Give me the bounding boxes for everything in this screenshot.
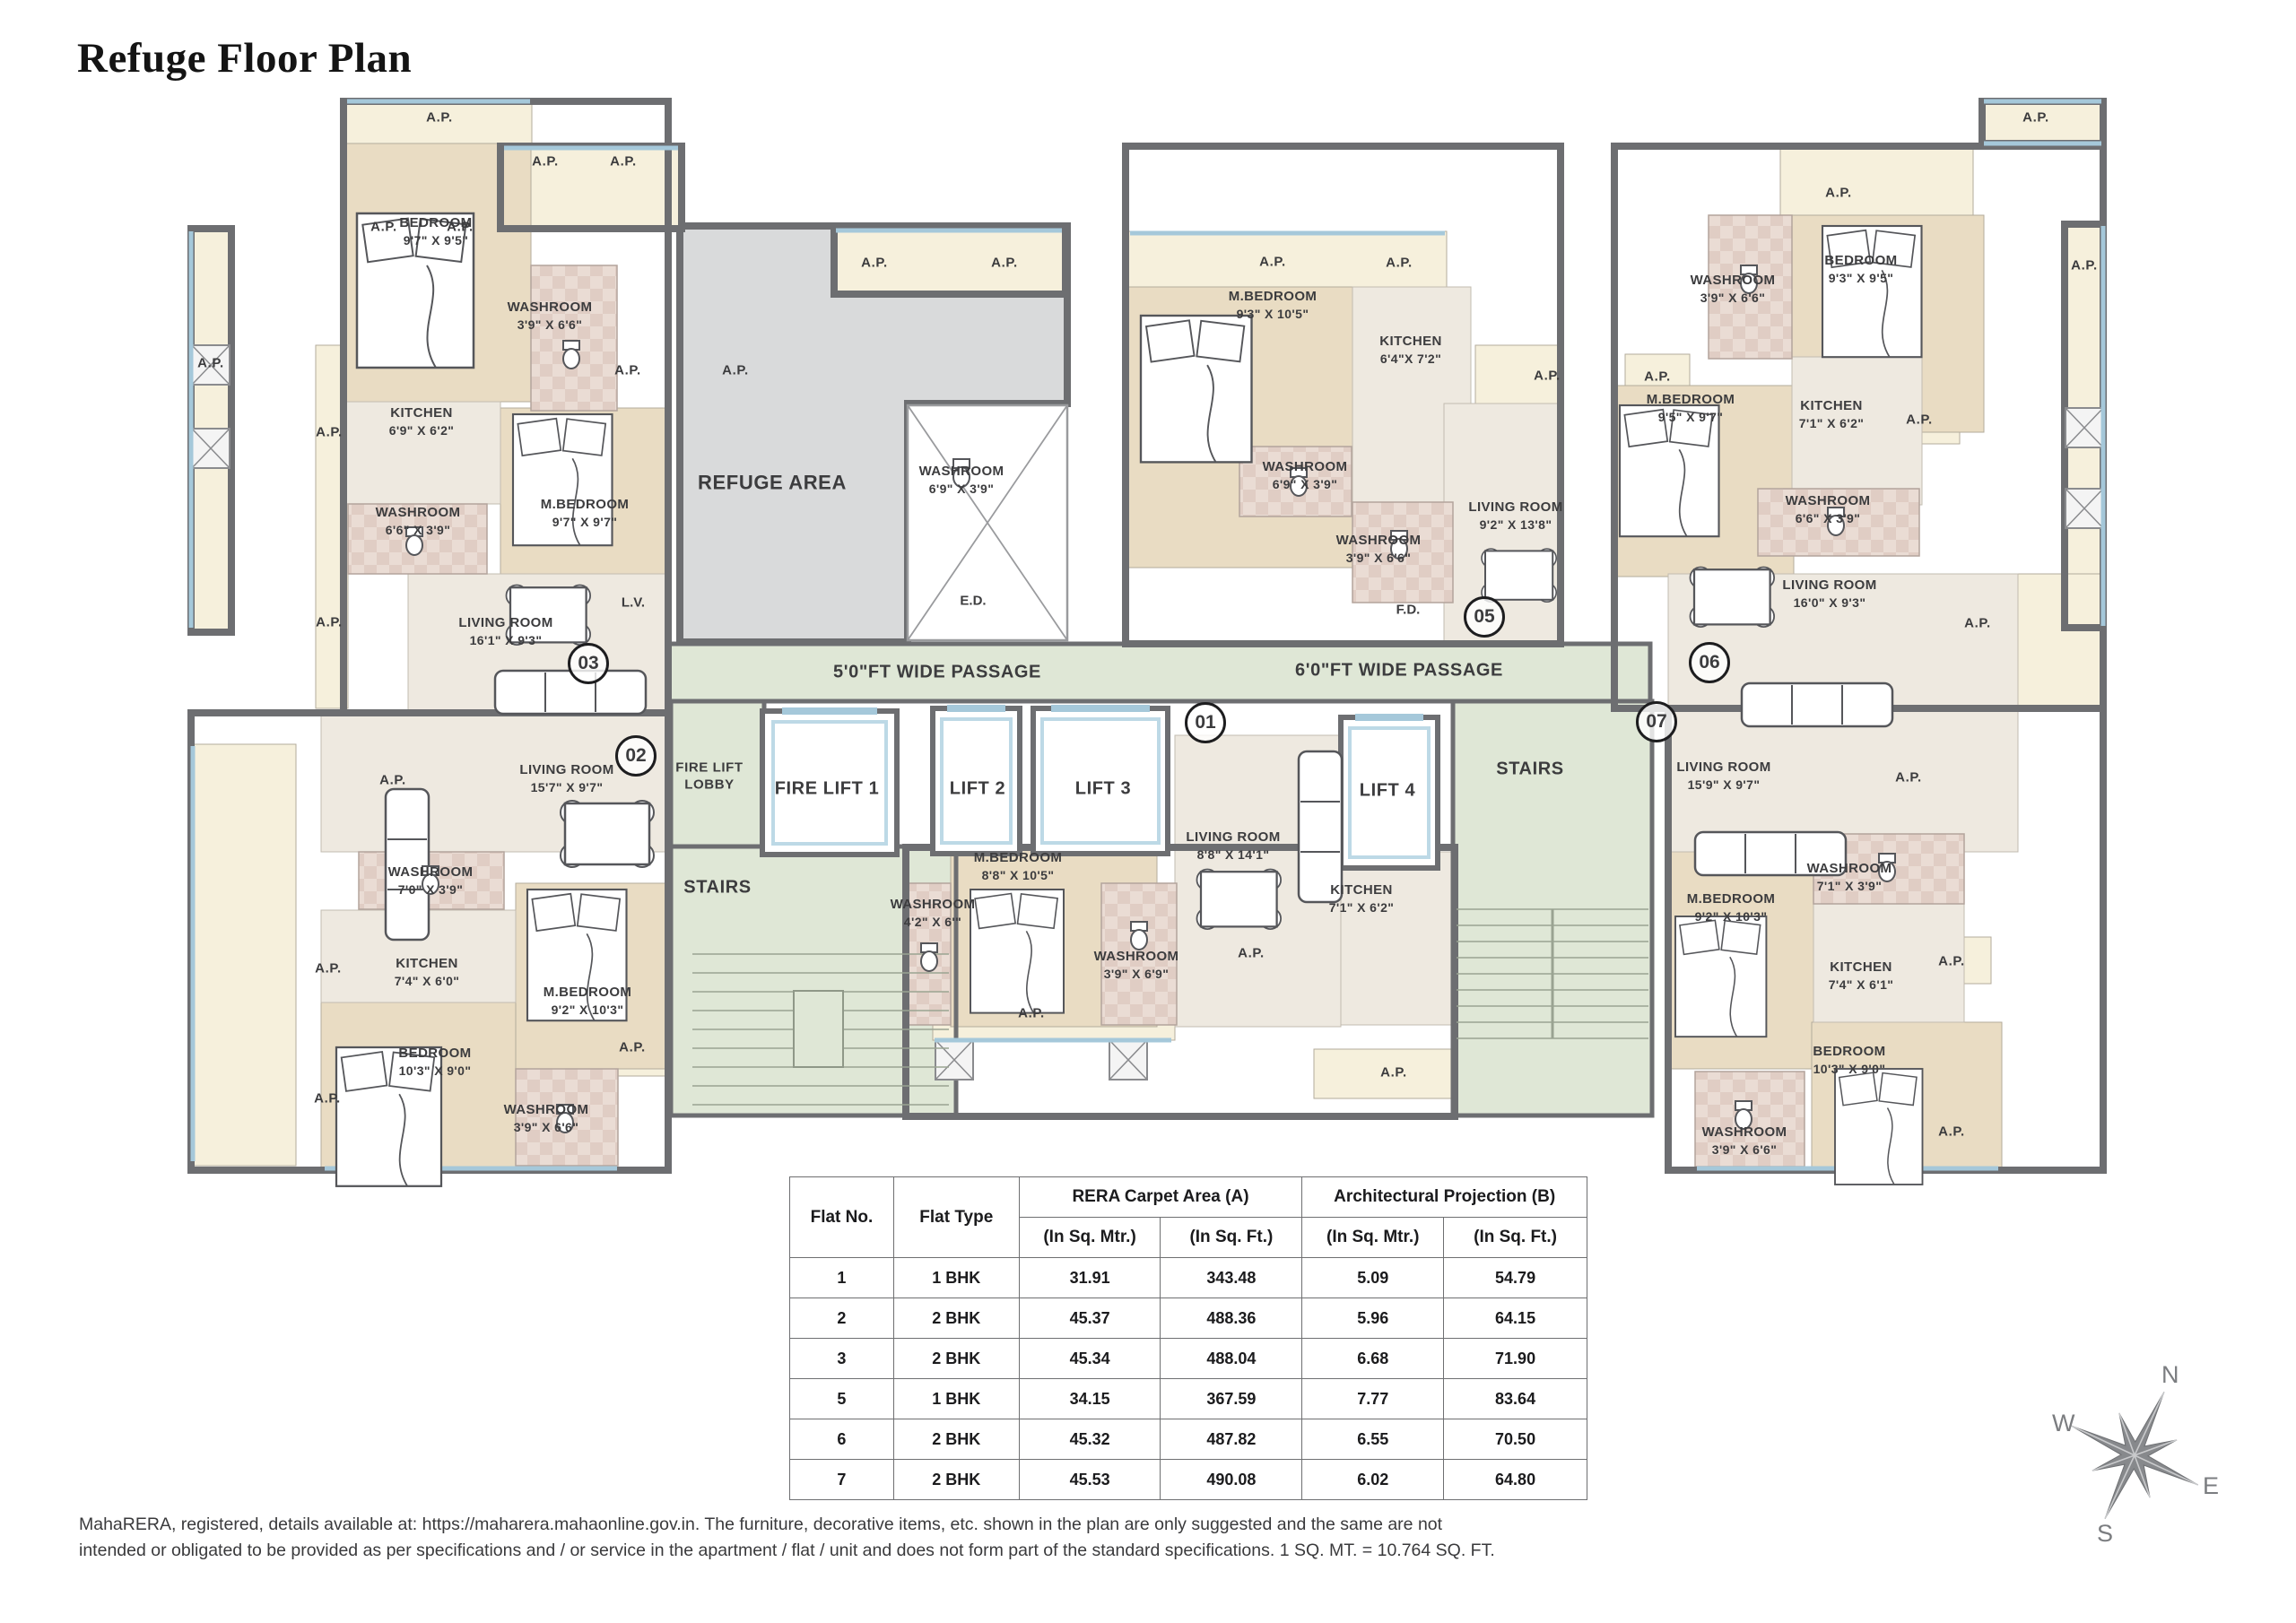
room-dimensions: 15'9" X 9'7" (1676, 777, 1770, 793)
ap-label: A.P. (1895, 770, 1922, 785)
room-label: LIVING ROOM15'7" X 9'7" (519, 761, 613, 795)
ap-label: A.P. (722, 363, 749, 378)
room-label: BEDROOM9'3" X 9'5" (1824, 252, 1897, 286)
room-name: WASHROOM (504, 1102, 589, 1117)
table-cell: 488.04 (1161, 1339, 1302, 1379)
room-name: WASHROOM (1691, 273, 1776, 288)
room-name: LIVING ROOM (1468, 499, 1562, 515)
th-flat-type: Flat Type (893, 1177, 1019, 1258)
compass-e-label: E (2203, 1472, 2220, 1500)
room-name: M.BEDROOM (974, 850, 1063, 865)
room-dimensions: 7'1" X 6'2" (1799, 415, 1865, 431)
ap-label: A.P. (619, 1040, 646, 1055)
disclaimer: MahaRERA, registered, details available … (79, 1512, 1495, 1565)
room-label: LIVING ROOM15'9" X 9'7" (1676, 759, 1770, 793)
compass-w-label: W (2052, 1410, 2075, 1437)
room-dimensions: 8'8" X 14'1" (1186, 846, 1280, 863)
area-label: FIRE LIFT LOBBY (675, 759, 743, 794)
room-label: M.BEDROOM9'5" X 9'7" (1647, 391, 1735, 425)
area-label: LIFT 4 (1360, 780, 1416, 803)
ap-label: A.P. (991, 256, 1018, 271)
table-cell: 2 BHK (893, 1298, 1019, 1339)
table-cell: 45.37 (1019, 1298, 1161, 1339)
table-cell: 5 (790, 1379, 894, 1419)
area-label: FIRE LIFT 1 (775, 778, 880, 801)
room-name: WASHROOM (1336, 533, 1422, 548)
room-dimensions: 6'9" X 3'9" (1263, 476, 1348, 492)
room-label: LIVING ROOM16'0" X 9'3" (1782, 577, 1876, 611)
table-cell: 54.79 (1444, 1258, 1587, 1298)
ap-label: A.P. (1259, 255, 1286, 270)
area-label: STAIRS (1496, 759, 1563, 781)
th-sub-unit: (In Sq. Ft.) (1161, 1218, 1302, 1258)
room-dimensions: 8'8" X 10'5" (974, 867, 1063, 883)
unit-number-badge: 01 (1185, 702, 1226, 743)
table-cell: 45.34 (1019, 1339, 1161, 1379)
th-sub-unit: (In Sq. Mtr.) (1019, 1218, 1161, 1258)
area-label: STAIRS (683, 877, 751, 899)
ap-label: A.P. (426, 110, 453, 126)
room-name: WASHROOM (1094, 949, 1179, 964)
room-name: WASHROOM (1786, 493, 1871, 508)
table-cell: 367.59 (1161, 1379, 1302, 1419)
room-name: M.BEDROOM (544, 985, 632, 1000)
table-cell: 2 BHK (893, 1419, 1019, 1460)
room-dimensions: 6'6" X 3'9" (1786, 510, 1871, 526)
room-name: WASHROOM (1263, 459, 1348, 474)
room-dimensions: 10'3" X 9'0" (1813, 1061, 1885, 1077)
room-label: WASHROOM3'9" X 6'6" (504, 1101, 589, 1135)
unit-number-badge: 05 (1464, 596, 1505, 638)
room-name: WASHROOM (891, 897, 976, 912)
room-name: WASHROOM (1807, 861, 1892, 876)
table-cell: 83.64 (1444, 1379, 1587, 1419)
room-label: WASHROOM4'2" X 6'" (891, 896, 976, 930)
table-cell: 2 BHK (893, 1339, 1019, 1379)
room-name: M.BEDROOM (1647, 392, 1735, 407)
ap-label: A.P. (315, 961, 342, 976)
room-dimensions: 9'7" X 9'7" (541, 514, 630, 530)
room-label: WASHROOM3'9" X 6'6" (1702, 1124, 1787, 1158)
table-cell: 3 (790, 1339, 894, 1379)
room-name: WASHROOM (1702, 1124, 1787, 1140)
room-label: WASHROOM3'9" X 6'6" (1691, 272, 1776, 306)
ap-label: A.P. (447, 220, 474, 235)
room-dimensions: 15'7" X 9'7" (519, 779, 613, 795)
room-label: WASHROOM3'9" X 6'9" (1094, 948, 1179, 982)
ap-label: A.P. (1964, 616, 1991, 631)
room-dimensions: 7'0" X 3'9" (388, 881, 474, 898)
table-cell: 490.08 (1161, 1460, 1302, 1500)
ap-label: A.P. (314, 1091, 341, 1107)
table-row: 32 BHK45.34488.046.6871.90 (790, 1339, 1587, 1379)
unit-number-badge: 07 (1636, 701, 1677, 742)
table-cell: 64.80 (1444, 1460, 1587, 1500)
ap-label: A.P. (1906, 412, 1933, 428)
room-name: KITCHEN (396, 956, 457, 971)
table-row: 11 BHK31.91343.485.0954.79 (790, 1258, 1587, 1298)
room-label: WASHROOM7'0" X 3'9" (388, 864, 474, 898)
ap-label: A.P. (861, 256, 888, 271)
room-name: BEDROOM (398, 1046, 471, 1061)
table-row: 72 BHK45.53490.086.0264.80 (790, 1460, 1587, 1500)
th-flat-no: Flat No. (790, 1177, 894, 1258)
room-label: KITCHEN7'1" X 6'2" (1799, 397, 1865, 431)
page: Refuge Floor Plan (0, 0, 2296, 1623)
misc-label: L.V. (622, 595, 645, 611)
ap-label: A.P. (610, 154, 637, 169)
room-name: KITCHEN (1330, 882, 1392, 898)
table-cell: 45.32 (1019, 1419, 1161, 1460)
area-label: 5'0"FT WIDE PASSAGE (833, 662, 1041, 684)
room-name: WASHROOM (376, 505, 461, 520)
compass-star-icon (2027, 1336, 2260, 1587)
table-cell: 5.96 (1302, 1298, 1444, 1339)
table-cell: 343.48 (1161, 1258, 1302, 1298)
room-name: LIVING ROOM (458, 615, 552, 630)
unit-number-badge: 02 (615, 735, 657, 777)
table-cell: 7.77 (1302, 1379, 1444, 1419)
table-cell: 71.90 (1444, 1339, 1587, 1379)
table-cell: 6 (790, 1419, 894, 1460)
th-sub-unit: (In Sq. Ft.) (1444, 1218, 1587, 1258)
ap-label: A.P. (1938, 1124, 1965, 1140)
room-name: KITCHEN (390, 405, 452, 421)
room-label: LIVING ROOM8'8" X 14'1" (1186, 829, 1280, 863)
ap-label: A.P. (1644, 369, 1671, 385)
room-dimensions: 6'9" X 6'2" (389, 422, 455, 438)
room-dimensions: 7'1" X 6'2" (1329, 899, 1395, 916)
room-name: BEDROOM (1813, 1044, 1885, 1059)
misc-label: E.D. (960, 594, 986, 609)
ap-label: A.P. (1534, 369, 1561, 384)
table-cell: 1 (790, 1258, 894, 1298)
ap-label: A.P. (316, 615, 343, 630)
table-row: 51 BHK34.15367.597.7783.64 (790, 1379, 1587, 1419)
table-cell: 6.55 (1302, 1419, 1444, 1460)
room-label: KITCHEN7'4" X 6'1" (1829, 959, 1894, 993)
room-name: KITCHEN (1830, 959, 1892, 975)
table-cell: 34.15 (1019, 1379, 1161, 1419)
room-dimensions: 9'3" X 9'5" (1824, 270, 1897, 286)
area-label: LIFT 2 (950, 778, 1006, 801)
area-label: 6'0"FT WIDE PASSAGE (1295, 660, 1503, 682)
compass-rose: N E S W (2027, 1336, 2260, 1587)
room-label: KITCHEN7'4" X 6'0" (395, 955, 460, 989)
table-cell: 64.15 (1444, 1298, 1587, 1339)
room-dimensions: 9'5" X 9'7" (1647, 409, 1735, 425)
room-label: WASHROOM7'1" X 3'9" (1807, 860, 1892, 894)
table-row: 22 BHK45.37488.365.9664.15 (790, 1298, 1587, 1339)
table-cell: 487.82 (1161, 1419, 1302, 1460)
ap-label: A.P. (1018, 1006, 1045, 1021)
compass-s-label: S (2097, 1520, 2114, 1548)
disclaimer-line-1: MahaRERA, registered, details available … (79, 1512, 1495, 1538)
room-dimensions: 7'4" X 6'0" (395, 973, 460, 989)
flat-area-table-grid: Flat No.Flat TypeRERA Carpet Area (A)Arc… (789, 1176, 1587, 1500)
ap-label: A.P. (379, 773, 406, 788)
table-cell: 1 BHK (893, 1379, 1019, 1419)
room-dimensions: 4'2" X 6'" (891, 914, 976, 930)
ap-label: A.P. (1938, 954, 1965, 969)
disclaimer-line-2: intended or obligated to be provided as … (79, 1538, 1495, 1564)
room-label: KITCHEN7'1" X 6'2" (1329, 881, 1395, 916)
room-label: M.BEDROOM8'8" X 10'5" (974, 849, 1063, 883)
room-dimensions: 6'6" X 3'9" (376, 522, 461, 538)
th-architectural-projection: Architectural Projection (B) (1302, 1177, 1587, 1218)
room-label: WASHROOM6'6" X 3'9" (1786, 492, 1871, 526)
room-name: M.BEDROOM (1229, 289, 1318, 304)
flat-area-table: Flat No.Flat TypeRERA Carpet Area (A)Arc… (789, 1176, 1587, 1500)
room-name: LIVING ROOM (1186, 829, 1280, 845)
th-sub-unit: (In Sq. Mtr.) (1302, 1218, 1444, 1258)
room-label: WASHROOM6'9" X 3'9" (919, 463, 1004, 497)
room-name: LIVING ROOM (519, 762, 613, 777)
table-cell: 2 (790, 1298, 894, 1339)
room-name: LIVING ROOM (1782, 577, 1876, 593)
room-label: WASHROOM6'9" X 3'9" (1263, 458, 1348, 492)
room-dimensions: 7'4" X 6'1" (1829, 976, 1894, 993)
ap-label: A.P. (1380, 1065, 1407, 1081)
room-dimensions: 9'2" X 10'3" (1687, 908, 1776, 924)
ap-label: A.P. (1238, 946, 1265, 961)
room-dimensions: 9'3" X 10'5" (1229, 306, 1318, 322)
table-cell: 7 (790, 1460, 894, 1500)
room-label: WASHROOM6'6" X 3'9" (376, 504, 461, 538)
table-cell: 6.02 (1302, 1460, 1444, 1500)
misc-label: F.D. (1396, 603, 1421, 618)
ap-label: A.P. (532, 154, 559, 169)
room-name: BEDROOM (1824, 253, 1897, 268)
room-dimensions: 3'9" X 6'6" (508, 317, 593, 333)
room-name: KITCHEN (1800, 398, 1862, 413)
unit-number-badge: 03 (568, 643, 609, 684)
ap-label: A.P. (370, 220, 397, 235)
ap-label: A.P. (1386, 256, 1413, 271)
room-dimensions: 16'0" X 9'3" (1782, 595, 1876, 611)
room-dimensions: 16'1" X 9'3" (458, 632, 552, 648)
table-cell: 488.36 (1161, 1298, 1302, 1339)
room-label: WASHROOM3'9" X 6'6" (1336, 532, 1422, 566)
room-label: LIVING ROOM9'2" X 13'8" (1468, 499, 1562, 533)
unit-number-badge: 06 (1689, 642, 1730, 683)
room-name: WASHROOM (388, 864, 474, 880)
room-label: M.BEDROOM9'2" X 10'3" (544, 984, 632, 1018)
room-dimensions: 9'2" X 10'3" (544, 1002, 632, 1018)
room-label: M.BEDROOM9'2" X 10'3" (1687, 890, 1776, 924)
ap-label: A.P. (2071, 258, 2098, 273)
table-cell: 70.50 (1444, 1419, 1587, 1460)
room-name: WASHROOM (508, 299, 593, 315)
table-cell: 2 BHK (893, 1460, 1019, 1500)
ap-label: A.P. (1825, 186, 1852, 201)
room-dimensions: 6'4"X 7'2" (1379, 351, 1441, 367)
room-label: BEDROOM10'3" X 9'0" (398, 1045, 471, 1079)
table-cell: 6.68 (1302, 1339, 1444, 1379)
room-dimensions: 3'9" X 6'9" (1094, 966, 1179, 982)
room-label: M.BEDROOM9'3" X 10'5" (1229, 288, 1318, 322)
room-name: LIVING ROOM (1676, 759, 1770, 775)
room-dimensions: 6'9" X 3'9" (919, 481, 1004, 497)
room-name: KITCHEN (1379, 334, 1441, 349)
ap-label: A.P. (197, 356, 224, 371)
area-label: LIFT 3 (1075, 778, 1132, 801)
room-label: M.BEDROOM9'7" X 9'7" (541, 496, 630, 530)
table-cell: 5.09 (1302, 1258, 1444, 1298)
room-dimensions: 9'2" X 13'8" (1468, 516, 1562, 533)
room-dimensions: 7'1" X 3'9" (1807, 878, 1892, 894)
room-label: WASHROOM3'9" X 6'6" (508, 299, 593, 333)
table-row: 62 BHK45.32487.826.5570.50 (790, 1419, 1587, 1460)
th-rera-carpet-area: RERA Carpet Area (A) (1019, 1177, 1302, 1218)
room-label: KITCHEN6'4"X 7'2" (1379, 333, 1441, 367)
room-label: KITCHEN6'9" X 6'2" (389, 404, 455, 438)
room-dimensions: 3'9" X 6'6" (1691, 290, 1776, 306)
ap-label: A.P. (614, 363, 641, 378)
room-name: WASHROOM (919, 464, 1004, 479)
room-dimensions: 3'9" X 6'6" (1336, 550, 1422, 566)
room-dimensions: 3'9" X 6'6" (504, 1119, 589, 1135)
room-name: M.BEDROOM (1687, 891, 1776, 907)
ap-label: A.P. (2022, 110, 2049, 126)
table-cell: 1 BHK (893, 1258, 1019, 1298)
room-label: BEDROOM10'3" X 9'0" (1813, 1043, 1885, 1077)
table-cell: 45.53 (1019, 1460, 1161, 1500)
room-dimensions: 10'3" X 9'0" (398, 1063, 471, 1079)
ap-label: A.P. (316, 425, 343, 440)
room-dimensions: 3'9" X 6'6" (1702, 1141, 1787, 1158)
room-label: LIVING ROOM16'1" X 9'3" (458, 614, 552, 648)
compass-n-label: N (2161, 1361, 2180, 1389)
room-name: M.BEDROOM (541, 497, 630, 512)
area-label: REFUGE AREA (698, 470, 847, 495)
table-cell: 31.91 (1019, 1258, 1161, 1298)
